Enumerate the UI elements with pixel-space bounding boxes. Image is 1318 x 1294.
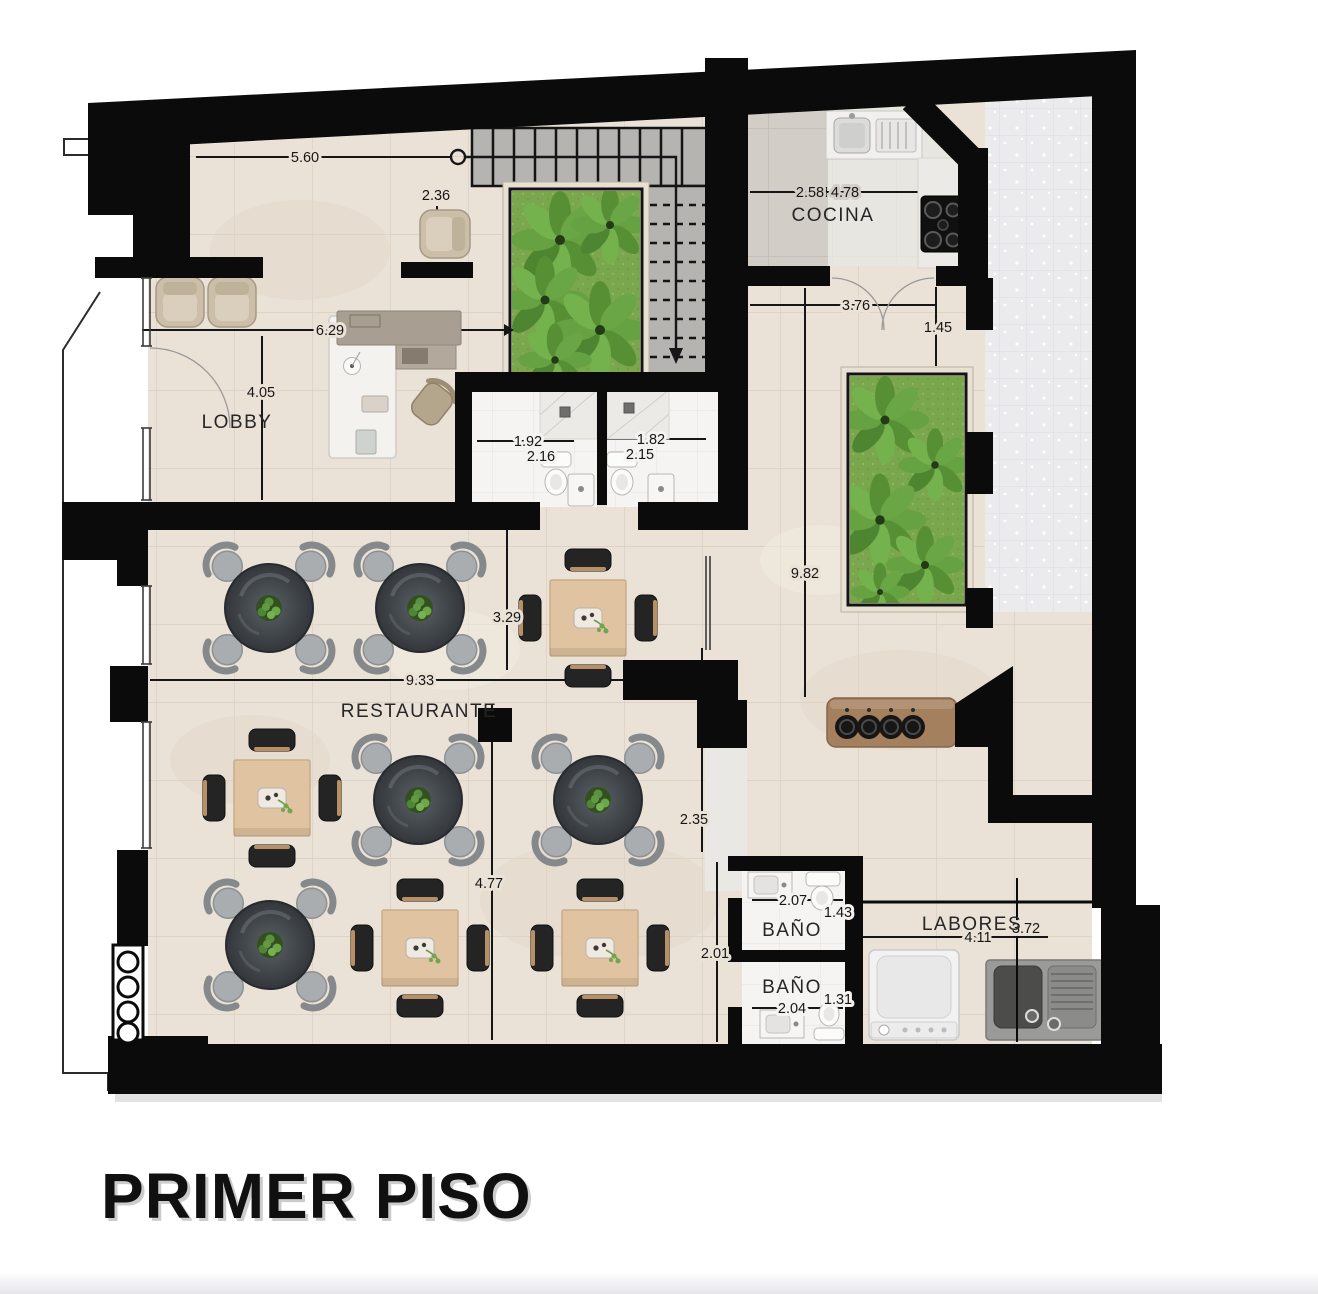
dim-kitchen-pass: 3.76 [842, 298, 870, 314]
dim-bath-a-depth: 2.16 [527, 449, 555, 465]
restaurant-dining-sets [198, 537, 669, 1017]
dim-patio-depth: 9.82 [791, 566, 819, 582]
stove-icon [921, 196, 964, 252]
floor-plan-image: 5.60 2.36 6.29 4.05 2.58 4.78 3.76 1.45 … [0, 0, 1318, 1294]
dim-restaurant-bay: 3.29 [493, 610, 521, 626]
dim-kitchen-width: 4.78 [831, 185, 859, 201]
dim-restaurant-depth: 4.77 [475, 876, 503, 892]
dim-wc-a-depth: 1.43 [824, 905, 852, 921]
lobby-armchair-2 [208, 277, 256, 327]
planter-box-circles [113, 945, 143, 1043]
side-patio-floor [985, 95, 1092, 612]
dim-lobby-depth: 4.05 [247, 385, 275, 401]
dim-planter-inset: 1.45 [924, 320, 952, 336]
room-label-bano-1: BAÑO [762, 919, 822, 941]
dim-entry-depth: 2.36 [422, 188, 450, 204]
waiting-armchair [420, 210, 470, 258]
bar-counter [827, 698, 957, 747]
keyboard-icon [362, 396, 388, 412]
room-label-restaurante: RESTAURANTE [341, 701, 498, 722]
dim-hall-width: 2.35 [680, 812, 708, 828]
dim-bath-b-depth: 2.15 [626, 447, 654, 463]
toilet-icon [806, 872, 840, 886]
lobby-armchair-1 [156, 277, 204, 327]
dim-lobby-width: 6.29 [316, 323, 344, 339]
toilet-icon [814, 1028, 844, 1040]
drain-icon [624, 403, 634, 413]
page-bottom-shade [0, 1272, 1318, 1294]
dim-wc-a-width: 2.07 [779, 893, 807, 909]
printer-icon [402, 348, 428, 364]
dim-wc-b-width: 2.04 [778, 1001, 806, 1017]
page: 5.60 2.36 6.29 4.05 2.58 4.78 3.76 1.45 … [0, 0, 1318, 1294]
floor-title: PRIMER PISO [101, 1160, 532, 1232]
washing-machine-icon [869, 950, 959, 1040]
dim-wc-b-depth: 1.31 [824, 992, 852, 1008]
dim-corridor: 2.01 [701, 946, 729, 962]
drain-icon [560, 407, 570, 417]
garden-planter-right [833, 367, 973, 621]
room-label-bano-2: BAÑO [762, 976, 822, 998]
dim-kitchen-left: 2.58 [796, 185, 824, 201]
laundry-sink-icon [986, 960, 1104, 1040]
wall-shadow [115, 1094, 1162, 1102]
dim-bath-b-width: 1.82 [637, 432, 665, 448]
garden-planter-top [501, 182, 649, 397]
dim-restaurant-width: 9.33 [406, 673, 434, 689]
room-label-lobby: LOBBY [202, 412, 273, 433]
room-label-labores: LABORES [922, 914, 1022, 935]
dim-bath-a-width: 1.92 [514, 434, 542, 450]
dim-top-width: 5.60 [291, 150, 319, 166]
room-label-cocina: COCINA [792, 205, 875, 226]
